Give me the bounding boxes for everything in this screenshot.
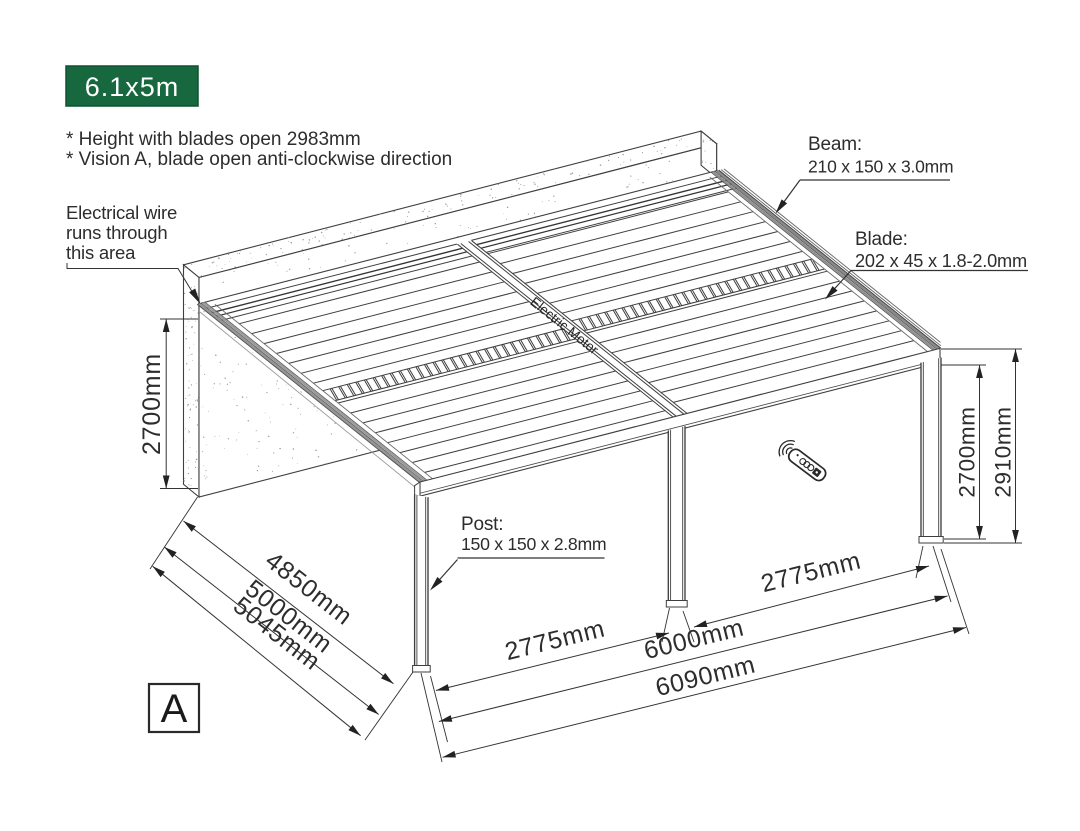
- svg-text:this area: this area: [66, 242, 136, 263]
- svg-text:Post:: Post:: [461, 514, 503, 535]
- svg-text:202 x 45 x 1.8-2.0mm: 202 x 45 x 1.8-2.0mm: [855, 251, 1027, 271]
- svg-text:A: A: [161, 687, 188, 731]
- svg-text:* Vision A, blade open anti-cl: * Vision A, blade open anti-clockwise di…: [66, 149, 452, 170]
- svg-text:2910mm: 2910mm: [991, 406, 1016, 497]
- svg-text:Beam:: Beam:: [808, 134, 862, 155]
- svg-text:* Height with blades open 2983: * Height with blades open 2983mm: [66, 129, 361, 150]
- svg-text:6.1x5m: 6.1x5m: [85, 72, 180, 102]
- svg-text:2700mm: 2700mm: [138, 353, 166, 455]
- svg-text:2700mm: 2700mm: [955, 406, 980, 497]
- svg-text:Blade:: Blade:: [855, 229, 908, 250]
- svg-text:150 x 150 x 2.8mm: 150 x 150 x 2.8mm: [461, 534, 606, 554]
- svg-text:runs through: runs through: [66, 222, 167, 243]
- svg-text:210 x 150 x 3.0mm: 210 x 150 x 3.0mm: [808, 157, 953, 177]
- svg-text:Electrical wire: Electrical wire: [66, 202, 177, 223]
